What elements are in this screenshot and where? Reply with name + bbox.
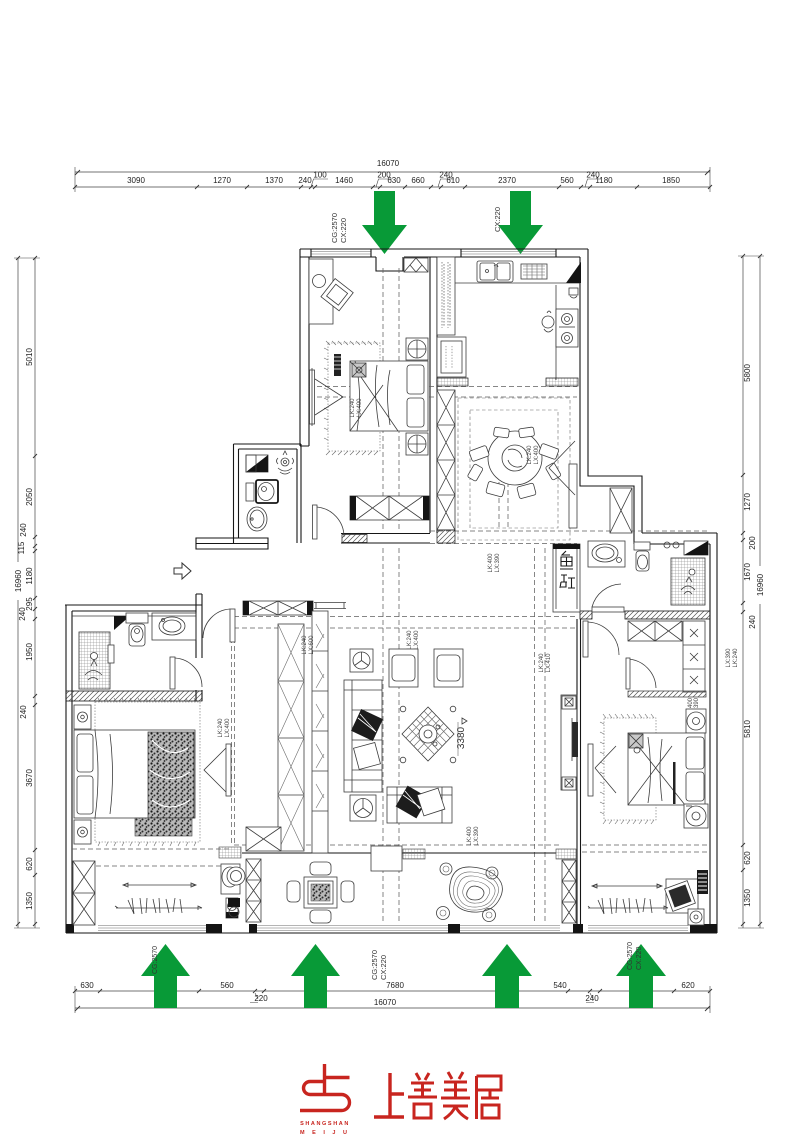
svg-text:100: 100 bbox=[313, 171, 327, 180]
svg-text:7680: 7680 bbox=[386, 981, 404, 990]
svg-text:660: 660 bbox=[411, 176, 425, 185]
svg-text:620: 620 bbox=[743, 851, 752, 865]
svg-text:200: 200 bbox=[748, 536, 757, 550]
svg-text:240: 240 bbox=[585, 994, 599, 1003]
svg-text:SHANGSHAN: SHANGSHAN bbox=[300, 1121, 350, 1127]
svg-text:5010: 5010 bbox=[25, 348, 34, 366]
svg-text:1950: 1950 bbox=[25, 643, 34, 661]
svg-text:1370: 1370 bbox=[265, 176, 283, 185]
svg-text:LX:400: LX:400 bbox=[414, 630, 420, 650]
svg-text:LK:400: LK:400 bbox=[488, 553, 494, 573]
svg-text:16070: 16070 bbox=[377, 159, 400, 168]
svg-text:CG:2570: CG:2570 bbox=[370, 950, 379, 980]
svg-text:16960: 16960 bbox=[756, 573, 765, 596]
svg-text:1270: 1270 bbox=[743, 493, 752, 511]
svg-text:LK:240: LK:240 bbox=[407, 630, 413, 650]
svg-text:620: 620 bbox=[681, 981, 695, 990]
svg-text:CG:2570: CG:2570 bbox=[330, 213, 339, 243]
svg-text:CX:220: CX:220 bbox=[379, 955, 388, 980]
svg-text:2370: 2370 bbox=[498, 176, 516, 185]
svg-text:LK:240: LK:240 bbox=[539, 653, 545, 673]
svg-text:630: 630 bbox=[387, 176, 401, 185]
svg-text:2050: 2050 bbox=[25, 488, 34, 506]
svg-text:CG:2570: CG:2570 bbox=[152, 946, 159, 974]
svg-text:16070: 16070 bbox=[374, 998, 397, 1007]
svg-text:CX:220: CX:220 bbox=[339, 218, 348, 243]
svg-text:LX:390: LX:390 bbox=[726, 648, 732, 668]
svg-text:LX:400: LX:400 bbox=[534, 445, 540, 465]
svg-text:240: 240 bbox=[19, 523, 28, 537]
svg-text:115: 115 bbox=[17, 541, 26, 554]
svg-text:LX:400: LX:400 bbox=[357, 398, 363, 418]
svg-text:240: 240 bbox=[19, 705, 28, 719]
svg-text:1180: 1180 bbox=[595, 176, 613, 185]
svg-text:3670: 3670 bbox=[25, 769, 34, 787]
svg-text:390: 390 bbox=[694, 697, 700, 708]
svg-text:LX:390: LX:390 bbox=[474, 826, 480, 846]
svg-text:5810: 5810 bbox=[743, 720, 752, 738]
svg-text:240: 240 bbox=[298, 176, 312, 185]
svg-text:16960: 16960 bbox=[14, 569, 23, 592]
svg-text:LX:410: LX:410 bbox=[546, 653, 552, 673]
svg-text:LK:240: LK:240 bbox=[302, 635, 308, 655]
svg-text:LX:390: LX:390 bbox=[495, 553, 501, 573]
svg-text:560: 560 bbox=[220, 981, 234, 990]
svg-text:1460: 1460 bbox=[335, 176, 353, 185]
svg-text:1180: 1180 bbox=[25, 567, 34, 585]
svg-text:3380: 3380 bbox=[456, 726, 467, 749]
svg-text:LK:240: LK:240 bbox=[733, 648, 739, 668]
svg-text:LX:600: LX:600 bbox=[309, 635, 315, 655]
svg-text:240: 240 bbox=[748, 615, 757, 629]
svg-text:1270: 1270 bbox=[213, 176, 231, 185]
svg-text:620: 620 bbox=[25, 857, 34, 871]
svg-text:M E I J U: M E I J U bbox=[300, 1130, 350, 1136]
svg-text:1350: 1350 bbox=[25, 892, 34, 910]
svg-text:630: 630 bbox=[80, 981, 94, 990]
svg-text:540: 540 bbox=[553, 981, 567, 990]
svg-text:1670: 1670 bbox=[743, 563, 752, 581]
svg-text:LX:400: LX:400 bbox=[225, 718, 231, 738]
svg-text:3090: 3090 bbox=[127, 176, 145, 185]
svg-text:LK:240: LK:240 bbox=[218, 718, 224, 738]
svg-text:610: 610 bbox=[446, 176, 460, 185]
svg-text:LK:240: LK:240 bbox=[350, 398, 356, 418]
svg-text:LK:400: LK:400 bbox=[467, 826, 473, 846]
svg-text:5800: 5800 bbox=[743, 364, 752, 382]
svg-text:560: 560 bbox=[560, 176, 574, 185]
svg-text:240: 240 bbox=[18, 607, 27, 621]
svg-text:CX:220: CX:220 bbox=[636, 947, 643, 970]
svg-text:1850: 1850 bbox=[662, 176, 680, 185]
svg-text:1350: 1350 bbox=[743, 889, 752, 907]
svg-text:CX:220: CX:220 bbox=[493, 207, 502, 232]
svg-text:CG:2570: CG:2570 bbox=[627, 942, 634, 970]
svg-text:LK:240: LK:240 bbox=[527, 445, 533, 465]
